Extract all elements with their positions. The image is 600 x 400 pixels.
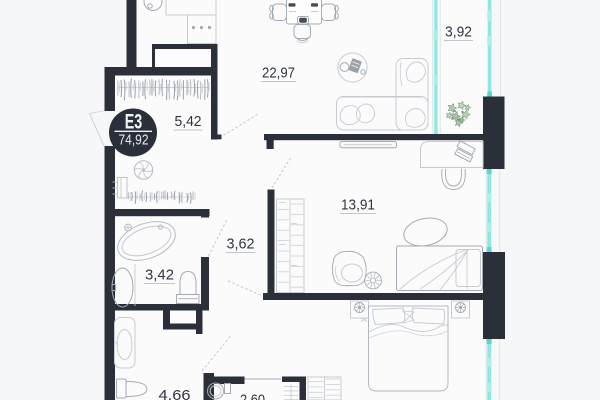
svg-text:5,42: 5,42 bbox=[175, 113, 202, 130]
svg-text:4,66: 4,66 bbox=[159, 387, 191, 400]
svg-text:3,42: 3,42 bbox=[145, 267, 174, 284]
svg-text:Е3: Е3 bbox=[125, 111, 143, 134]
svg-text:13,91: 13,91 bbox=[341, 197, 375, 214]
svg-text:3,62: 3,62 bbox=[227, 236, 255, 253]
svg-text:2,60: 2,60 bbox=[240, 392, 265, 400]
svg-text:22,97: 22,97 bbox=[262, 65, 295, 82]
svg-text:74,92: 74,92 bbox=[119, 132, 149, 149]
svg-text:3,92: 3,92 bbox=[445, 24, 472, 41]
